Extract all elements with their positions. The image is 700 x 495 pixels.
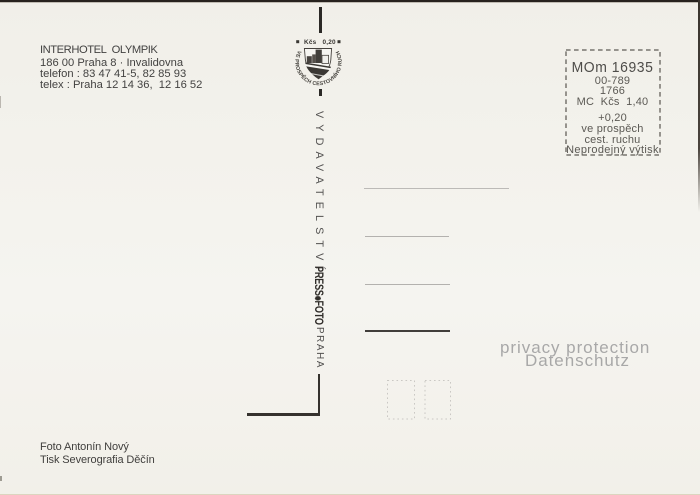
svg-text:0,20: 0,20 xyxy=(323,39,336,46)
svg-text:Kčs: Kčs xyxy=(304,39,317,46)
